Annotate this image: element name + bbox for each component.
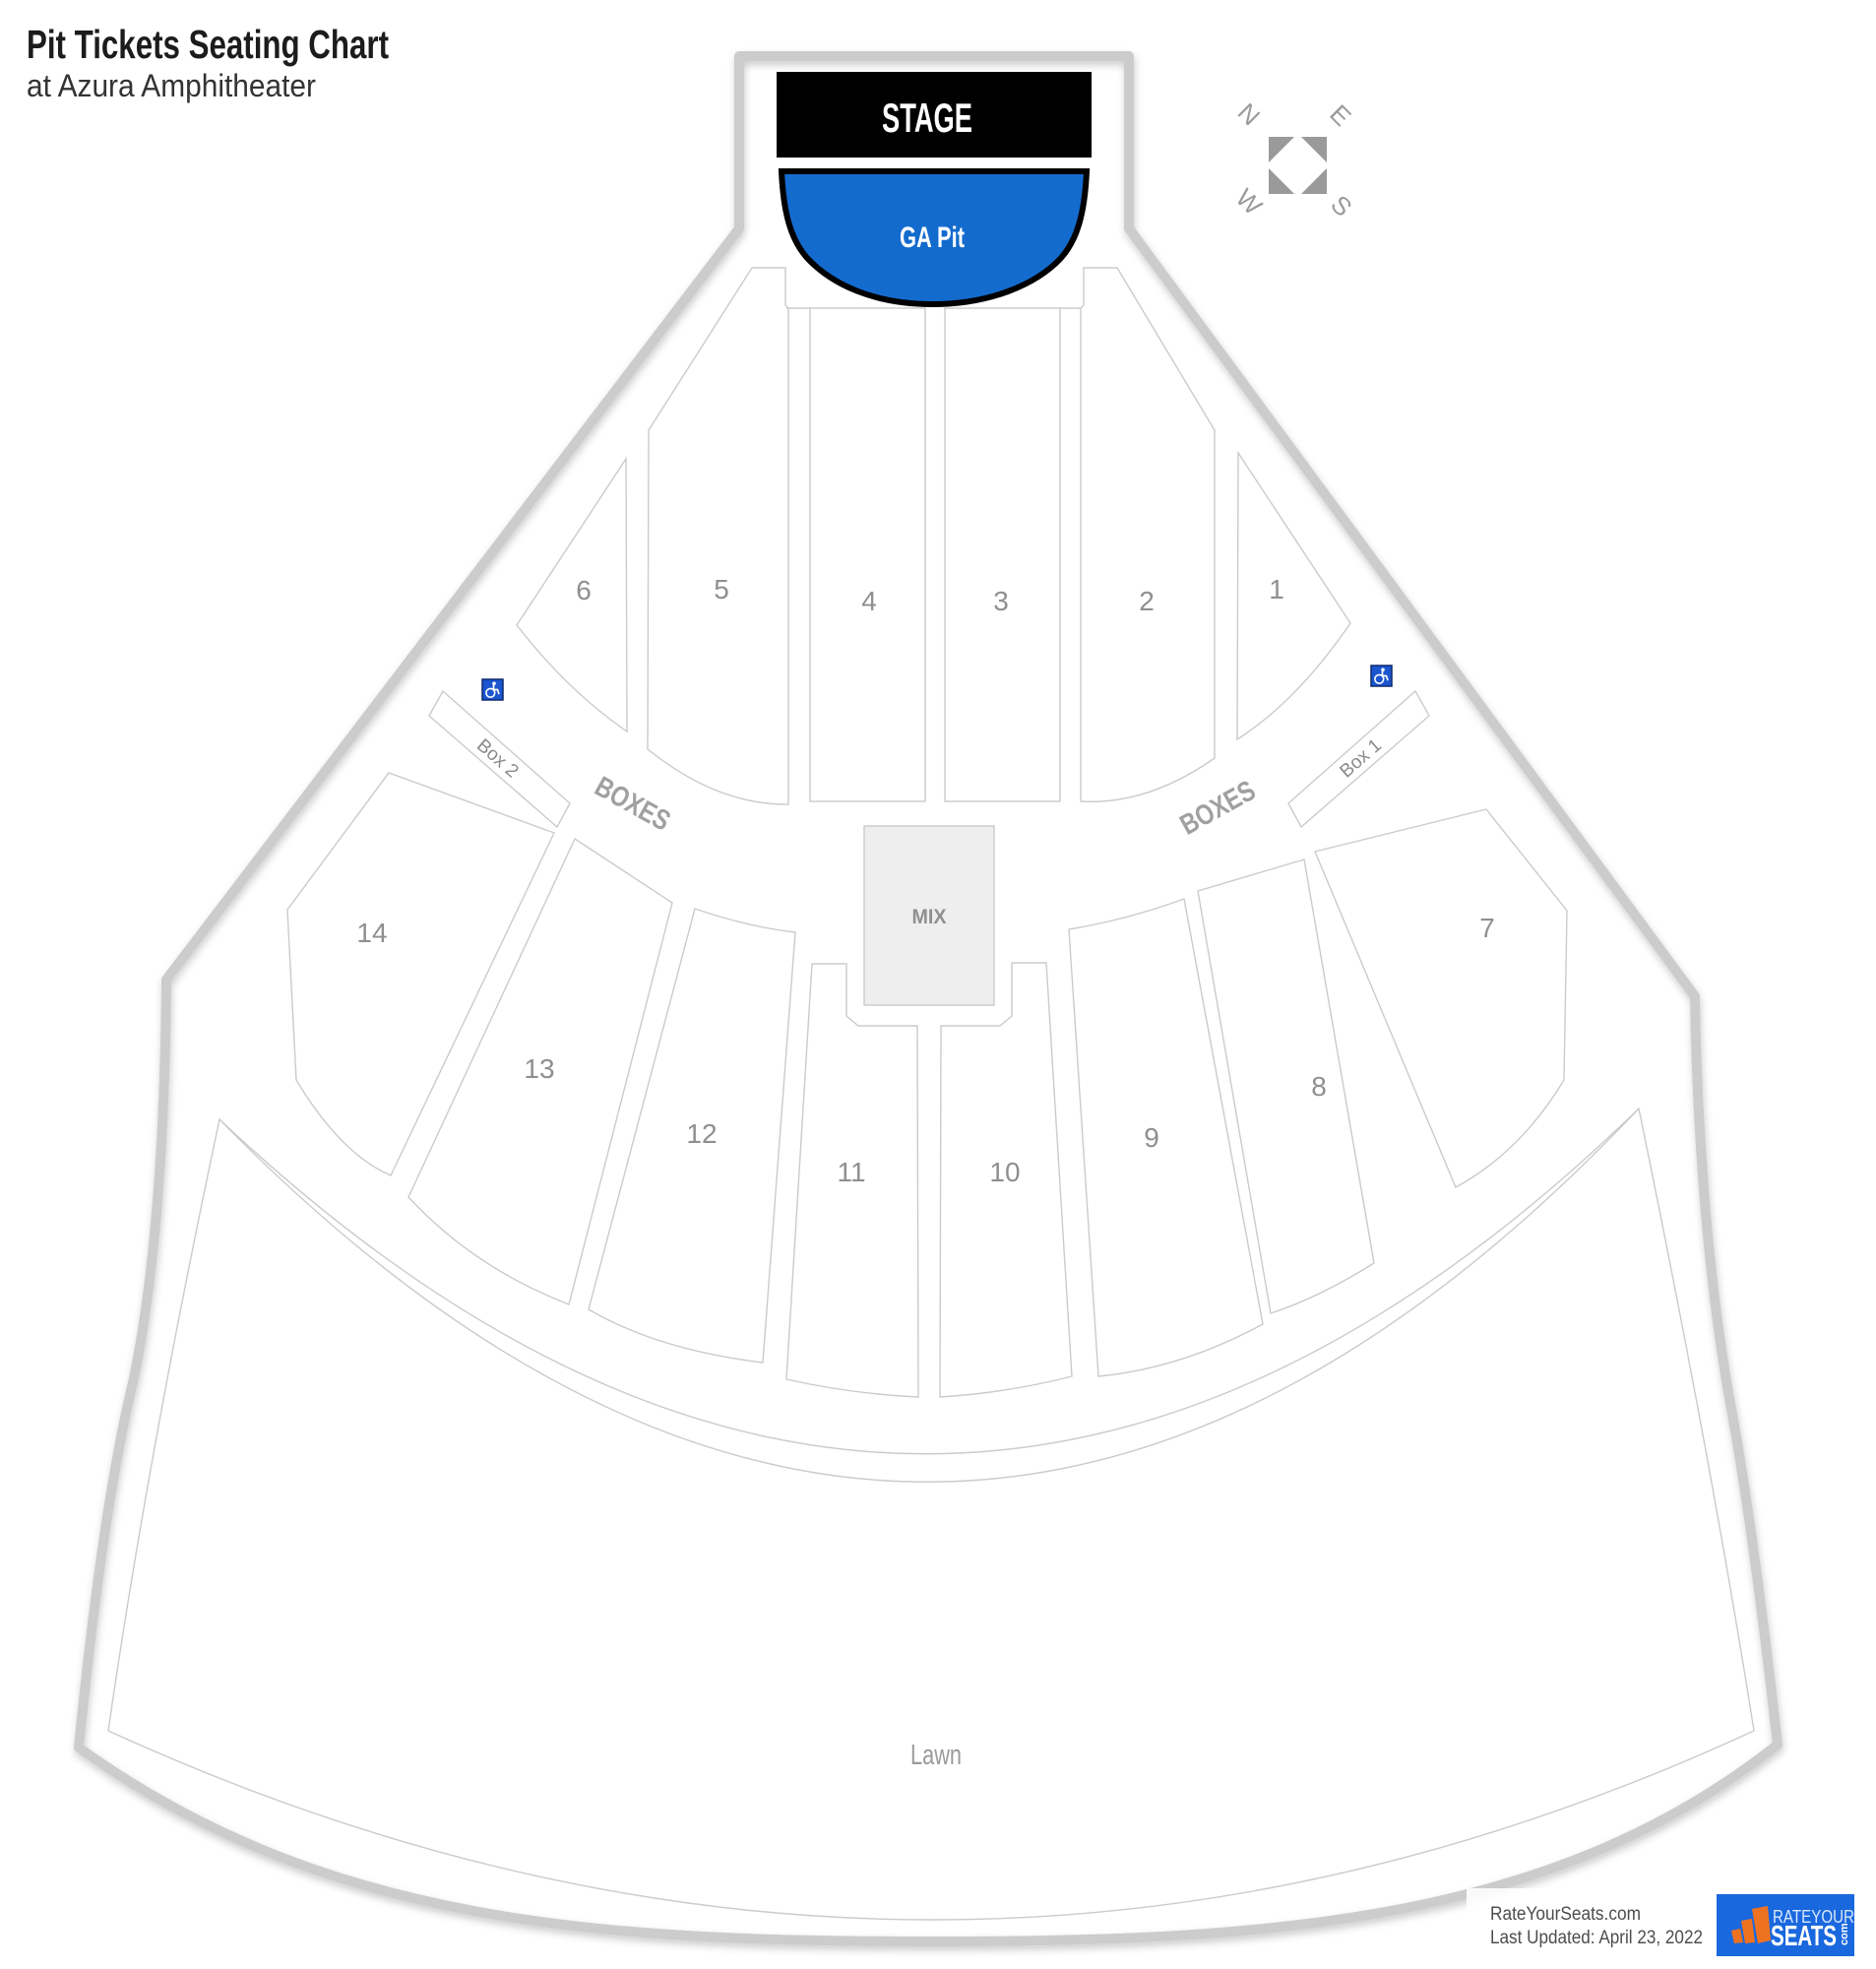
svg-text:Pit Tickets Seating Chart: Pit Tickets Seating Chart xyxy=(27,22,389,67)
svg-text:GA Pit: GA Pit xyxy=(900,222,965,254)
svg-text:8: 8 xyxy=(1311,1071,1327,1102)
svg-text:9: 9 xyxy=(1144,1122,1159,1153)
svg-text:11: 11 xyxy=(837,1157,865,1187)
svg-text:7: 7 xyxy=(1479,913,1495,943)
svg-text:MIX: MIX xyxy=(912,906,947,928)
svg-text:5: 5 xyxy=(714,574,729,604)
svg-text:Lawn: Lawn xyxy=(910,1740,962,1771)
svg-text:14: 14 xyxy=(356,918,387,948)
svg-text:1: 1 xyxy=(1269,574,1284,604)
svg-text:Last Updated: April 23, 2022: Last Updated: April 23, 2022 xyxy=(1490,1928,1703,1948)
svg-text:13: 13 xyxy=(524,1053,554,1084)
svg-text:RateYourSeats.com: RateYourSeats.com xyxy=(1490,1904,1641,1925)
svg-text:STAGE: STAGE xyxy=(882,95,972,141)
svg-text:4: 4 xyxy=(861,586,877,616)
svg-text:SEATS: SEATS xyxy=(1771,1921,1837,1952)
svg-text:com: com xyxy=(1839,1923,1850,1945)
svg-text:at Azura Amphitheater: at Azura Amphitheater xyxy=(27,68,316,103)
svg-text:10: 10 xyxy=(989,1157,1020,1187)
svg-text:12: 12 xyxy=(686,1118,717,1149)
svg-text:6: 6 xyxy=(576,575,592,605)
svg-text:3: 3 xyxy=(993,586,1009,616)
svg-text:2: 2 xyxy=(1139,586,1155,616)
